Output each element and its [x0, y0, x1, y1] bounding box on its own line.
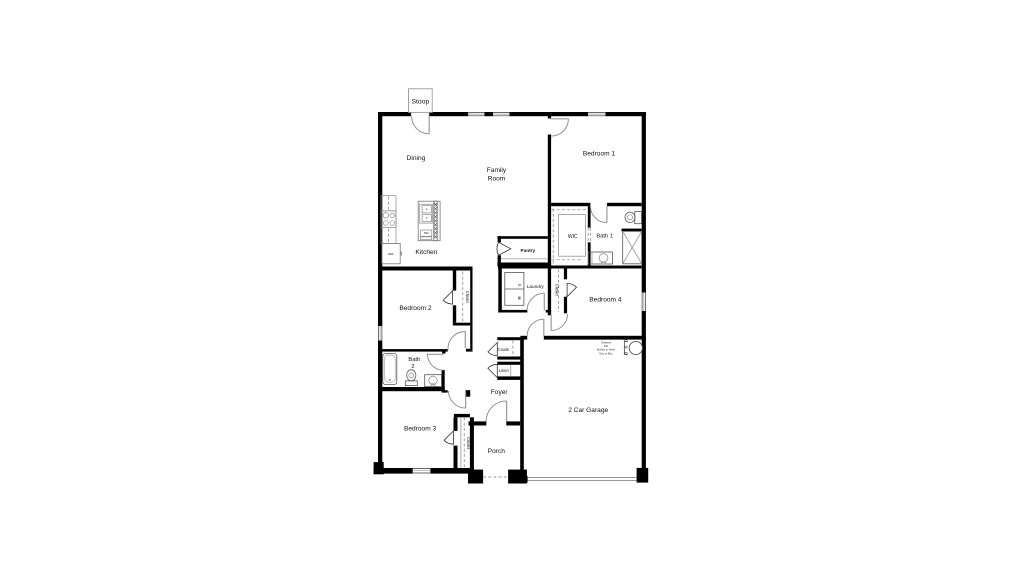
svg-text:Foyer: Foyer: [491, 389, 509, 396]
svg-text:Closet: Closet: [466, 437, 471, 450]
svg-text:Dining: Dining: [407, 155, 426, 162]
svg-text:Coats: Coats: [498, 347, 509, 352]
svg-text:REF: REF: [388, 252, 394, 256]
svg-text:Stoop: Stoop: [412, 99, 430, 106]
svg-text:Bedroom 3: Bedroom 3: [404, 426, 437, 433]
svg-text:DW: DW: [424, 231, 429, 235]
svg-text:Builder to Verify: Builder to Verify: [597, 348, 616, 352]
svg-text:Tankless: Tankless: [601, 340, 612, 344]
svg-text:Bedroom 2: Bedroom 2: [399, 305, 432, 312]
svg-text:Porch: Porch: [488, 448, 506, 455]
svg-text:Room: Room: [488, 175, 506, 182]
svg-text:Closet: Closet: [555, 284, 560, 297]
svg-text:Laundry: Laundry: [527, 284, 545, 289]
svg-text:Bath 1: Bath 1: [596, 233, 613, 239]
svg-text:2: 2: [411, 364, 414, 370]
svg-text:Bath: Bath: [408, 357, 420, 363]
svg-text:Bedroom 1: Bedroom 1: [583, 150, 616, 157]
svg-text:Bedroom 4: Bedroom 4: [589, 297, 622, 304]
svg-text:Linen: Linen: [499, 368, 510, 373]
svg-text:Kitchen: Kitchen: [415, 249, 437, 256]
svg-text:WIC: WIC: [568, 234, 578, 240]
svg-text:Gas or Elec: Gas or Elec: [599, 351, 613, 355]
svg-text:Family: Family: [487, 167, 507, 174]
svg-text:WH: WH: [604, 344, 608, 348]
svg-text:2 Car Garage: 2 Car Garage: [568, 407, 608, 414]
svg-text:Pantry: Pantry: [521, 248, 536, 253]
svg-text:Closet: Closet: [465, 291, 470, 304]
